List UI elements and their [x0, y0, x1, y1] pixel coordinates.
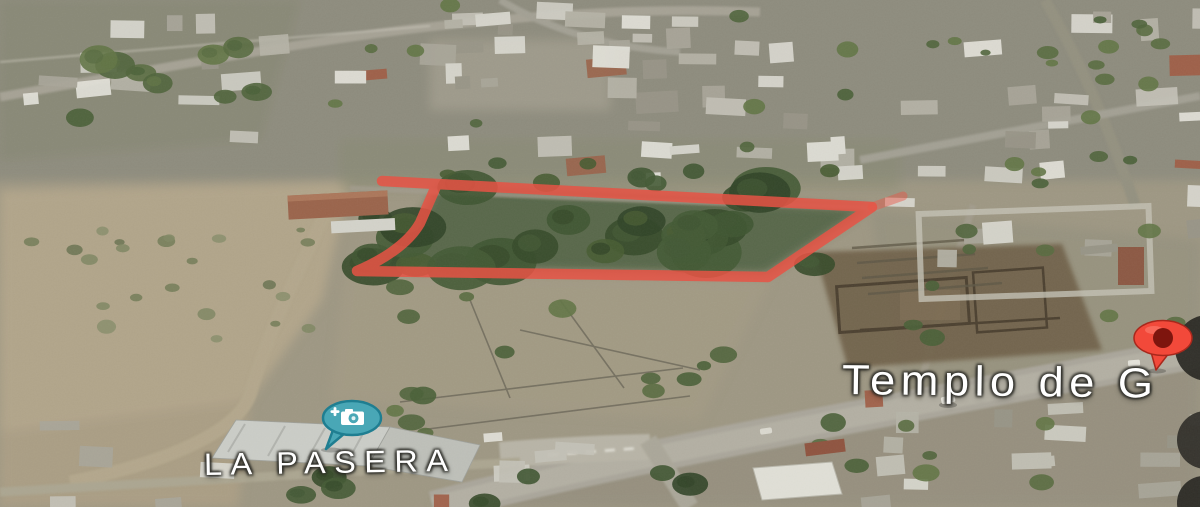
map-pin-icon — [1153, 328, 1173, 348]
haze — [0, 0, 1200, 507]
photo-pin[interactable] — [314, 399, 388, 453]
satellite-map[interactable]: LA PASERA Templo de G — [0, 0, 1200, 507]
place-pin[interactable] — [1124, 318, 1200, 374]
pin-shadow — [321, 448, 341, 453]
satellite-imagery — [0, 0, 1200, 507]
map-label-templo-de-g[interactable]: Templo de G — [842, 356, 1159, 408]
